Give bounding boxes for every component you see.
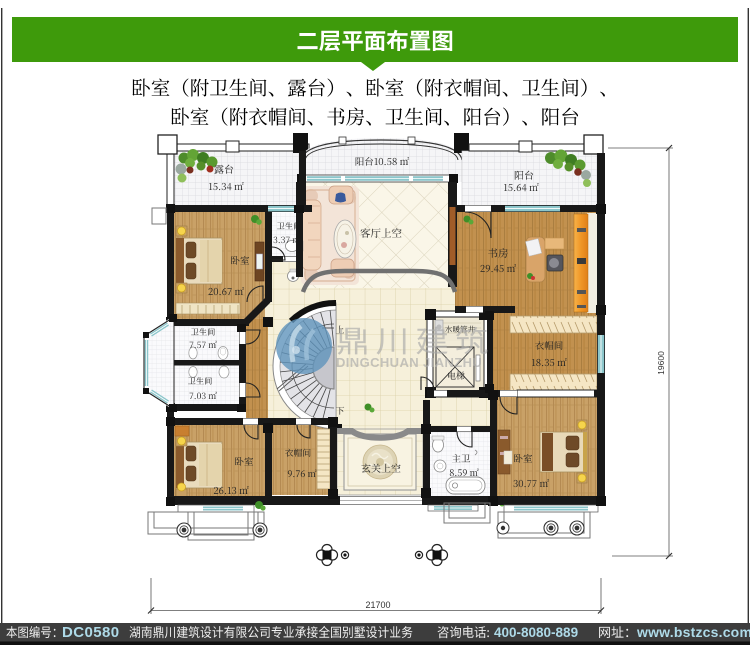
svg-text:21700: 21700 — [365, 600, 390, 610]
svg-text:DINGCHUAN JIANZHU: DINGCHUAN JIANZHU — [336, 355, 482, 370]
svg-text:DC0580: DC0580 — [62, 624, 119, 641]
svg-text:www.bstzcs.com: www.bstzcs.com — [636, 624, 750, 640]
svg-text:400-8080-889: 400-8080-889 — [494, 625, 578, 640]
svg-text:19600: 19600 — [656, 351, 666, 375]
